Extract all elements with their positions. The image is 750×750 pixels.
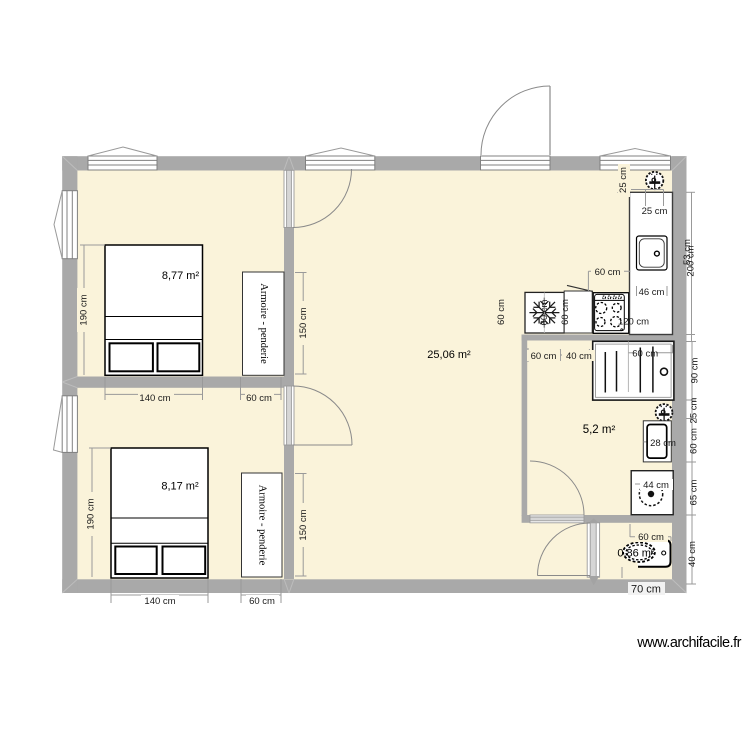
- svg-text:190 cm: 190 cm: [86, 498, 97, 529]
- svg-text:25,06 m²: 25,06 m²: [427, 349, 471, 361]
- svg-text:60 cm: 60 cm: [496, 299, 507, 325]
- svg-text:60 cm: 60 cm: [539, 299, 550, 325]
- svg-text:Armoire - penderie: Armoire - penderie: [258, 283, 269, 364]
- svg-text:190 cm: 190 cm: [79, 294, 90, 325]
- svg-text:40 cm: 40 cm: [566, 351, 592, 362]
- svg-text:Armoire - penderie: Armoire - penderie: [257, 485, 268, 566]
- svg-text:120 cm: 120 cm: [618, 316, 649, 327]
- svg-text:25 cm: 25 cm: [689, 397, 700, 423]
- svg-text:60 cm: 60 cm: [632, 348, 658, 359]
- svg-text:28 cm: 28 cm: [650, 438, 676, 449]
- svg-text:65 cm: 65 cm: [689, 479, 700, 505]
- svg-text:0,86 m²: 0,86 m²: [617, 548, 655, 560]
- svg-text:150 cm: 150 cm: [298, 509, 309, 540]
- svg-text:140 cm: 140 cm: [139, 393, 170, 404]
- svg-text:60 cm: 60 cm: [249, 596, 275, 607]
- svg-text:60 cm: 60 cm: [531, 351, 557, 362]
- svg-text:25 cm: 25 cm: [642, 206, 668, 217]
- svg-text:70 cm: 70 cm: [631, 584, 661, 596]
- svg-text:8,77 m²: 8,77 m²: [162, 270, 200, 282]
- svg-text:5,2 m²: 5,2 m²: [583, 424, 616, 436]
- svg-text:www.archifacile.fr: www.archifacile.fr: [636, 635, 741, 651]
- svg-text:44 cm: 44 cm: [643, 480, 669, 491]
- svg-text:140 cm: 140 cm: [144, 596, 175, 607]
- svg-text:60 cm: 60 cm: [595, 267, 621, 278]
- svg-text:25 cm: 25 cm: [618, 167, 629, 193]
- svg-text:60 cm: 60 cm: [689, 428, 700, 454]
- svg-text:200 cm: 200 cm: [686, 245, 697, 276]
- svg-text:150 cm: 150 cm: [298, 307, 309, 338]
- svg-text:46 cm: 46 cm: [639, 287, 665, 298]
- svg-text:60 cm: 60 cm: [560, 299, 571, 325]
- svg-text:40 cm: 40 cm: [687, 541, 698, 567]
- svg-text:90 cm: 90 cm: [690, 357, 701, 383]
- svg-text:60 cm: 60 cm: [246, 393, 272, 404]
- svg-text:60 cm: 60 cm: [638, 532, 664, 543]
- svg-text:8,17 m²: 8,17 m²: [161, 481, 199, 493]
